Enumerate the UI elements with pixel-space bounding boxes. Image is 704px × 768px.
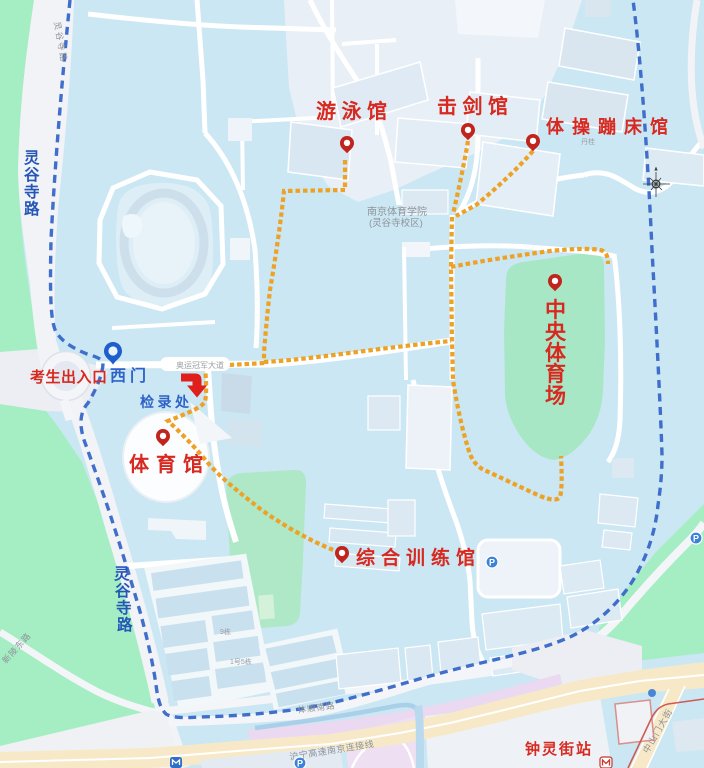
- svg-text:考生出入口: 考生出入口: [30, 368, 108, 386]
- svg-text:路: 路: [24, 199, 40, 218]
- svg-text:中: 中: [545, 299, 566, 322]
- svg-text:灵: 灵: [114, 565, 130, 583]
- svg-text:寺: 寺: [24, 182, 40, 201]
- svg-text:体操蹦床馆: 体操蹦床馆: [546, 116, 676, 137]
- svg-text:1号5栋: 1号5栋: [230, 657, 252, 666]
- svg-text:游泳馆: 游泳馆: [316, 99, 393, 123]
- svg-text:央: 央: [545, 321, 567, 344]
- svg-text:育: 育: [545, 362, 566, 386]
- svg-text:P: P: [489, 558, 495, 568]
- svg-text:P: P: [693, 534, 699, 544]
- svg-text:(灵谷寺校区): (灵谷寺校区): [369, 217, 423, 229]
- svg-text:寺: 寺: [116, 598, 132, 617]
- svg-text:9栋: 9栋: [220, 627, 231, 636]
- svg-text:奥运冠军大道: 奥运冠军大道: [176, 360, 224, 370]
- svg-text:场: 场: [545, 385, 566, 408]
- svg-text:体育馆: 体育馆: [129, 452, 210, 476]
- svg-text:检录处: 检录处: [140, 394, 193, 410]
- svg-text:击剑馆: 击剑馆: [437, 94, 514, 118]
- svg-text:体: 体: [545, 342, 567, 365]
- svg-text:谷: 谷: [115, 582, 131, 600]
- svg-text:灵: 灵: [24, 149, 40, 167]
- svg-text:谷: 谷: [24, 166, 40, 184]
- svg-text:钟灵街站: 钟灵街站: [525, 740, 593, 758]
- svg-text:丹桂: 丹桂: [581, 137, 595, 146]
- svg-text:综合训练馆: 综合训练馆: [356, 546, 481, 569]
- svg-text:南京体育学院: 南京体育学院: [367, 205, 427, 218]
- svg-text:西门: 西门: [110, 366, 150, 385]
- svg-text:路: 路: [117, 615, 133, 634]
